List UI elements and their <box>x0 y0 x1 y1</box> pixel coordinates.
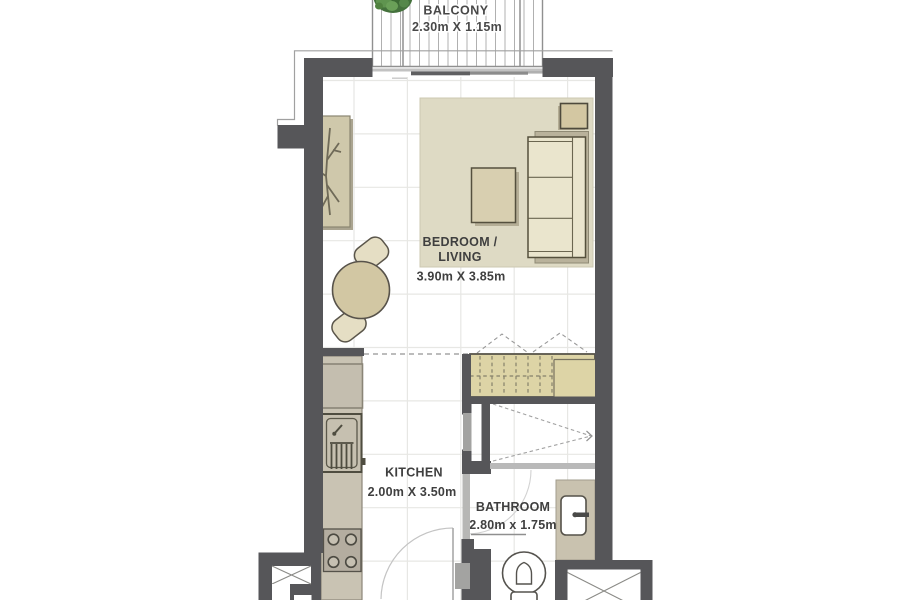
svg-text:2.30m X 1.15m: 2.30m X 1.15m <box>412 20 502 34</box>
svg-text:2.00m X 3.50m: 2.00m X 3.50m <box>368 485 457 499</box>
svg-text:2.80m x 1.75m: 2.80m x 1.75m <box>469 518 556 532</box>
svg-text:3.90m X 3.85m: 3.90m X 3.85m <box>417 270 506 284</box>
svg-text:LIVING: LIVING <box>438 250 481 264</box>
svg-text:KITCHEN: KITCHEN <box>385 466 443 480</box>
svg-text:BATHROOM: BATHROOM <box>476 500 550 514</box>
svg-text:BALCONY: BALCONY <box>423 4 488 18</box>
svg-text:BEDROOM /: BEDROOM / <box>423 235 498 249</box>
